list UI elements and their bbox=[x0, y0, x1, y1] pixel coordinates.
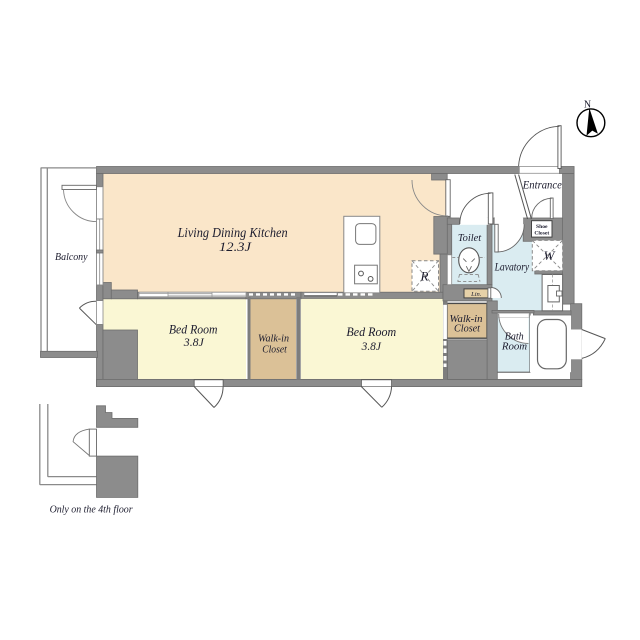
svg-text:W: W bbox=[544, 248, 556, 263]
svg-text:Closet: Closet bbox=[454, 324, 481, 335]
svg-text:Shoe: Shoe bbox=[536, 224, 548, 230]
svg-text:Closet: Closet bbox=[262, 345, 287, 356]
svg-text:3.8J: 3.8J bbox=[183, 335, 205, 349]
svg-text:Walk-in: Walk-in bbox=[258, 334, 289, 345]
svg-text:12.3J: 12.3J bbox=[219, 239, 252, 254]
svg-text:Entrance: Entrance bbox=[522, 180, 562, 192]
svg-text:Only on the 4th floor: Only on the 4th floor bbox=[50, 504, 134, 516]
svg-text:Lin.: Lin. bbox=[470, 291, 482, 298]
svg-text:Closet: Closet bbox=[534, 230, 549, 236]
svg-text:Room: Room bbox=[501, 342, 528, 353]
svg-text:3.8J: 3.8J bbox=[361, 339, 382, 353]
svg-text:Lavatory: Lavatory bbox=[494, 262, 530, 274]
svg-text:R: R bbox=[420, 269, 429, 284]
svg-text:Balcony: Balcony bbox=[55, 251, 88, 263]
svg-text:Bed Room: Bed Room bbox=[346, 325, 396, 339]
svg-text:N: N bbox=[584, 99, 591, 110]
svg-text:Toilet: Toilet bbox=[458, 232, 482, 244]
